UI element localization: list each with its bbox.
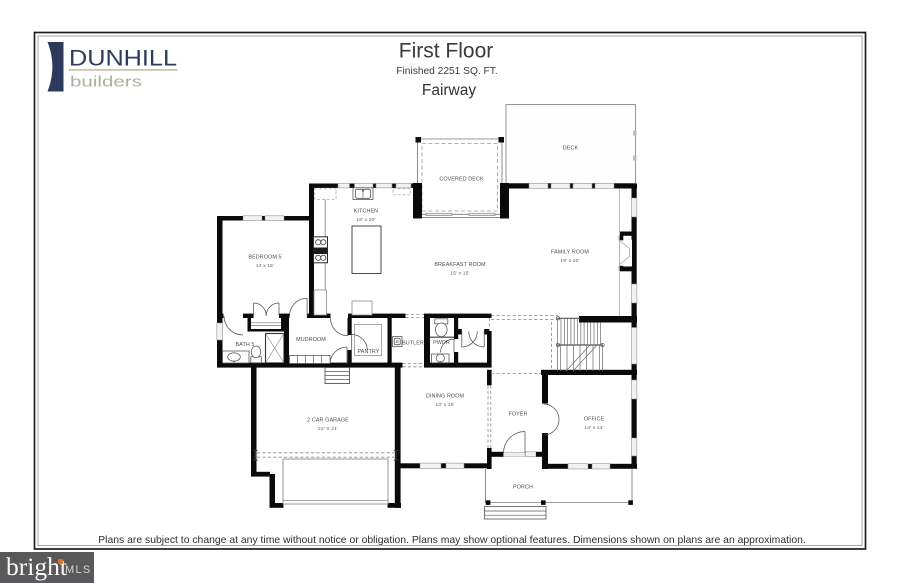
svg-text:22' X 21': 22' X 21' bbox=[318, 426, 338, 432]
svg-text:DINING ROOM: DINING ROOM bbox=[426, 394, 465, 400]
svg-text:Fairway: Fairway bbox=[422, 82, 477, 99]
svg-text:16' x 20': 16' x 20' bbox=[356, 217, 375, 223]
svg-text:PORCH: PORCH bbox=[513, 485, 533, 491]
svg-text:BATH 5: BATH 5 bbox=[235, 342, 254, 348]
svg-text:builders: builders bbox=[70, 74, 142, 91]
svg-text:13' x 15': 13' x 15' bbox=[435, 402, 454, 408]
svg-text:FAMILY ROOM: FAMILY ROOM bbox=[551, 250, 589, 256]
svg-text:COVERED DECK: COVERED DECK bbox=[439, 177, 484, 183]
svg-text:14 x 15': 14 x 15' bbox=[256, 263, 274, 269]
svg-text:14' x 14': 14' x 14' bbox=[584, 425, 603, 431]
svg-text:DECK: DECK bbox=[563, 146, 579, 152]
svg-text:15' x 15': 15' x 15' bbox=[450, 270, 469, 276]
svg-text:19' x 20': 19' x 20' bbox=[560, 258, 579, 264]
svg-text:BEDROOM 5: BEDROOM 5 bbox=[248, 255, 281, 261]
svg-text:BUTLER: BUTLER bbox=[402, 340, 424, 346]
svg-text:First Floor: First Floor bbox=[399, 40, 494, 63]
svg-text:PANTRY: PANTRY bbox=[358, 349, 380, 355]
svg-text:KITCHEN: KITCHEN bbox=[354, 209, 378, 215]
svg-text:Finished 2251 SQ. FT.: Finished 2251 SQ. FT. bbox=[396, 66, 497, 77]
svg-text:PWDR: PWDR bbox=[433, 340, 450, 346]
svg-text:BREAKFAST ROOM: BREAKFAST ROOM bbox=[434, 262, 486, 268]
svg-text:2 CAR GARAGE: 2 CAR GARAGE bbox=[307, 418, 349, 424]
svg-text:DUNHILL: DUNHILL bbox=[69, 45, 177, 70]
svg-text:Plans are subject to change at: Plans are subject to change at any time … bbox=[98, 535, 806, 546]
svg-text:FOYER: FOYER bbox=[508, 412, 527, 418]
svg-text:MUDROOM: MUDROOM bbox=[296, 337, 326, 343]
svg-text:OFFICE: OFFICE bbox=[584, 417, 605, 423]
